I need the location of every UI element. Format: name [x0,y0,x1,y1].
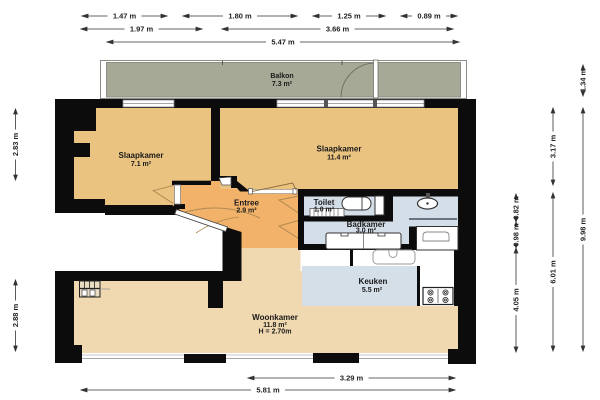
svg-text:Balkon: Balkon [270,73,293,80]
svg-text:Entree: Entree [234,199,259,208]
svg-text:1.97 m: 1.97 m [130,25,154,34]
svg-text:3.0 m²: 3.0 m² [356,228,377,235]
svg-text:4.05 m: 4.05 m [512,288,521,312]
svg-text:5.5 m²: 5.5 m² [362,287,383,294]
svg-text:0.98 m: 0.98 m [512,223,521,247]
svg-text:3.66 m: 3.66 m [326,25,350,34]
svg-text:5.81 m: 5.81 m [256,386,280,395]
svg-text:11.4 m²: 11.4 m² [327,155,351,162]
svg-text:Keuken: Keuken [359,277,388,286]
svg-text:Woonkamer: Woonkamer [252,313,298,322]
svg-text:3.17 m: 3.17 m [549,134,558,158]
svg-text:H = 2.70m: H = 2.70m [259,329,292,336]
svg-text:6.01 m: 6.01 m [549,260,558,284]
svg-text:2.83 m: 2.83 m [11,132,20,156]
svg-text:7.1 m²: 7.1 m² [131,161,152,168]
svg-text:2.9 m²: 2.9 m² [236,208,257,215]
svg-text:9.98 m: 9.98 m [579,217,588,241]
svg-text:1.0 m²: 1.0 m² [314,206,335,213]
svg-text:2.88 m: 2.88 m [11,303,20,327]
svg-text:0.89 m: 0.89 m [417,12,441,21]
svg-text:5.47 m: 5.47 m [271,38,295,47]
svg-text:1.34 m: 1.34 m [579,68,588,92]
svg-text:1.47 m: 1.47 m [113,12,137,21]
svg-text:Slaapkamer: Slaapkamer [317,145,362,154]
svg-text:Slaapkamer: Slaapkamer [119,151,164,160]
svg-text:0.82 m: 0.82 m [512,196,521,220]
svg-text:3.29 m: 3.29 m [340,374,364,383]
svg-text:7.3 m²: 7.3 m² [272,81,293,88]
svg-text:1.25 m: 1.25 m [337,12,361,21]
svg-text:1.80 m: 1.80 m [228,12,252,21]
